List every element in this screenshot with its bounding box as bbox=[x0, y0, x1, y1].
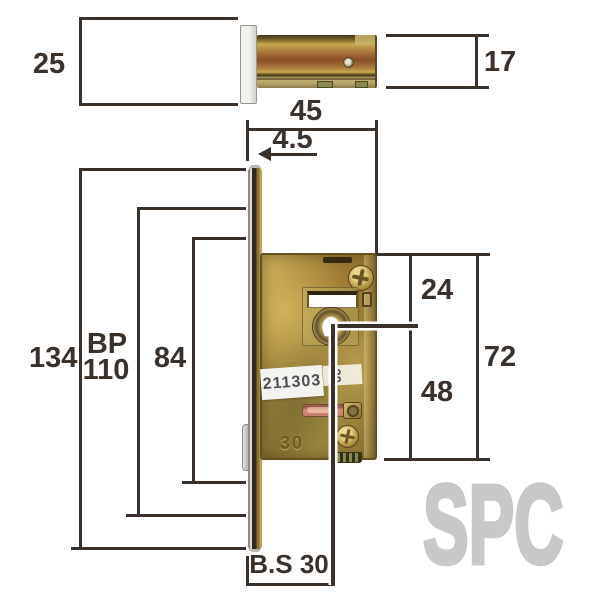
latch-slot-pin bbox=[347, 405, 359, 417]
lock-body-top-step bbox=[355, 35, 375, 45]
dim-45-left-tick bbox=[246, 120, 249, 161]
dim-24-48-vertical-line bbox=[409, 253, 412, 461]
dim-25-top-line bbox=[79, 17, 238, 20]
dim-17-bottom-line bbox=[386, 86, 489, 89]
dim-bp110-vertical-line bbox=[137, 207, 140, 517]
cylinder-center-horizontal-line bbox=[331, 324, 418, 328]
dim-110-label: 110 bbox=[82, 355, 130, 385]
dim-45-right-tick bbox=[375, 120, 378, 256]
top-view-tab-right bbox=[355, 81, 368, 88]
bottom-screw bbox=[336, 425, 359, 448]
dim-72-label: 72 bbox=[478, 342, 522, 372]
dim-48-label: 48 bbox=[415, 377, 459, 407]
lock-dimension-drawing: 25 17 45 4.5 211303 30 30 134 bbox=[0, 0, 600, 600]
dim-bs-line bbox=[246, 583, 335, 586]
dim-17-top-line bbox=[386, 34, 489, 37]
latch-slot-highlight bbox=[307, 407, 331, 413]
lock-case-window bbox=[307, 291, 358, 308]
faceplate-top-view bbox=[240, 25, 257, 104]
case-stamp: 30 bbox=[275, 433, 309, 454]
dim-84-bottom-line bbox=[182, 481, 246, 484]
pin-hole-top-view bbox=[343, 57, 354, 68]
dim-17-label: 17 bbox=[478, 47, 522, 77]
dim-45-label: 45 bbox=[286, 96, 326, 126]
lock-case-bottom-tab bbox=[333, 452, 362, 463]
spc-watermark: SPC bbox=[423, 468, 563, 580]
backset-vertical-line bbox=[331, 324, 335, 585]
dim-25-vertical-line bbox=[79, 17, 82, 106]
dim-84-top-line bbox=[192, 237, 246, 240]
dim-134-bottom-line bbox=[71, 547, 246, 550]
lock-case-top-slot bbox=[323, 257, 352, 263]
dim-backset-label: B.S 30 bbox=[247, 550, 331, 578]
dim-84-label: 84 bbox=[148, 343, 192, 373]
serial-number-text: 211303 bbox=[262, 371, 322, 393]
dim-25-label: 25 bbox=[27, 49, 71, 79]
top-view-tab-left bbox=[317, 81, 333, 88]
dim-25-bottom-line bbox=[79, 103, 238, 106]
dim-4-5-label: 4.5 bbox=[270, 124, 315, 154]
dim-24-label: 24 bbox=[415, 275, 459, 305]
dim-84-vertical-line bbox=[192, 237, 195, 484]
dim-right-bottom-line bbox=[384, 458, 490, 461]
serial-number-label: 211303 bbox=[260, 365, 324, 400]
side-sticker: 30 bbox=[323, 364, 363, 386]
dim-right-top-line bbox=[375, 253, 490, 256]
dim-134-top-line bbox=[79, 168, 246, 171]
dim-134-label: 134 bbox=[29, 343, 75, 373]
dim-bp110-bottom-line bbox=[126, 514, 246, 517]
dim-bp110-top-line bbox=[137, 207, 246, 210]
lock-case-side-cutout bbox=[362, 292, 372, 307]
lock-body-top-seam bbox=[257, 78, 377, 80]
